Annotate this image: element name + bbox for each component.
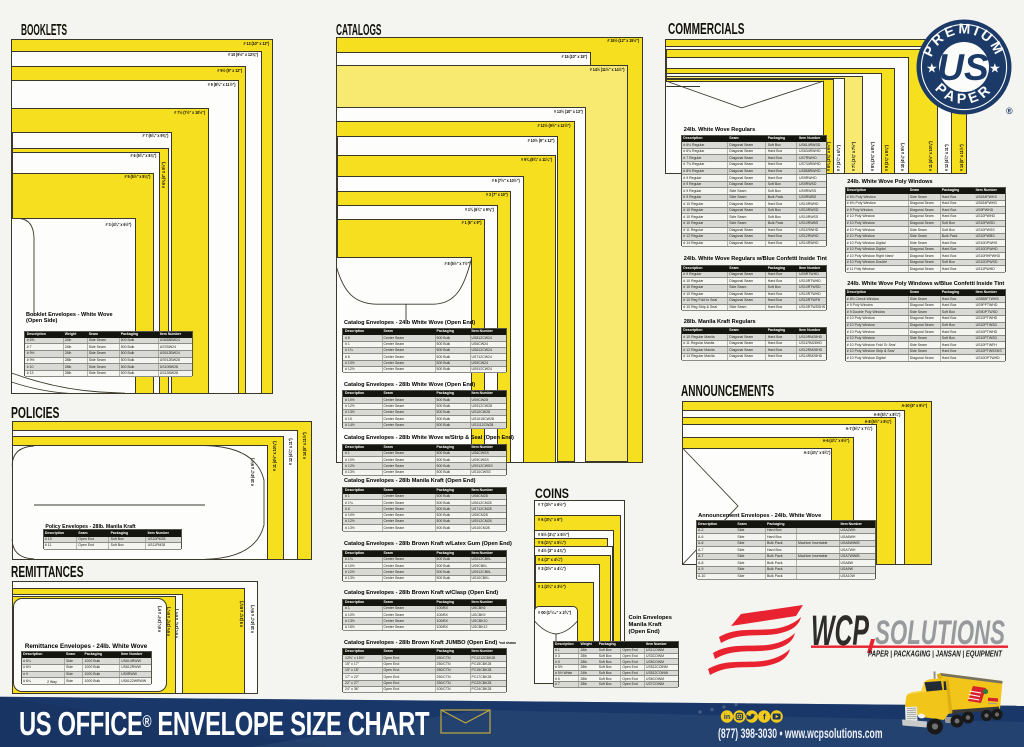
svg-text:in: in [724,714,730,721]
svg-text:★: ★ [926,61,938,76]
svg-text:US: US [937,47,989,88]
svg-text:★: ★ [989,61,1001,76]
svg-text:PAPER | PACKAGING | JANSAN | E: PAPER | PACKAGING | JANSAN | EQUIPMENT [868,650,1003,659]
svg-text:f: f [763,712,766,722]
svg-text:®: ® [1006,106,1013,116]
